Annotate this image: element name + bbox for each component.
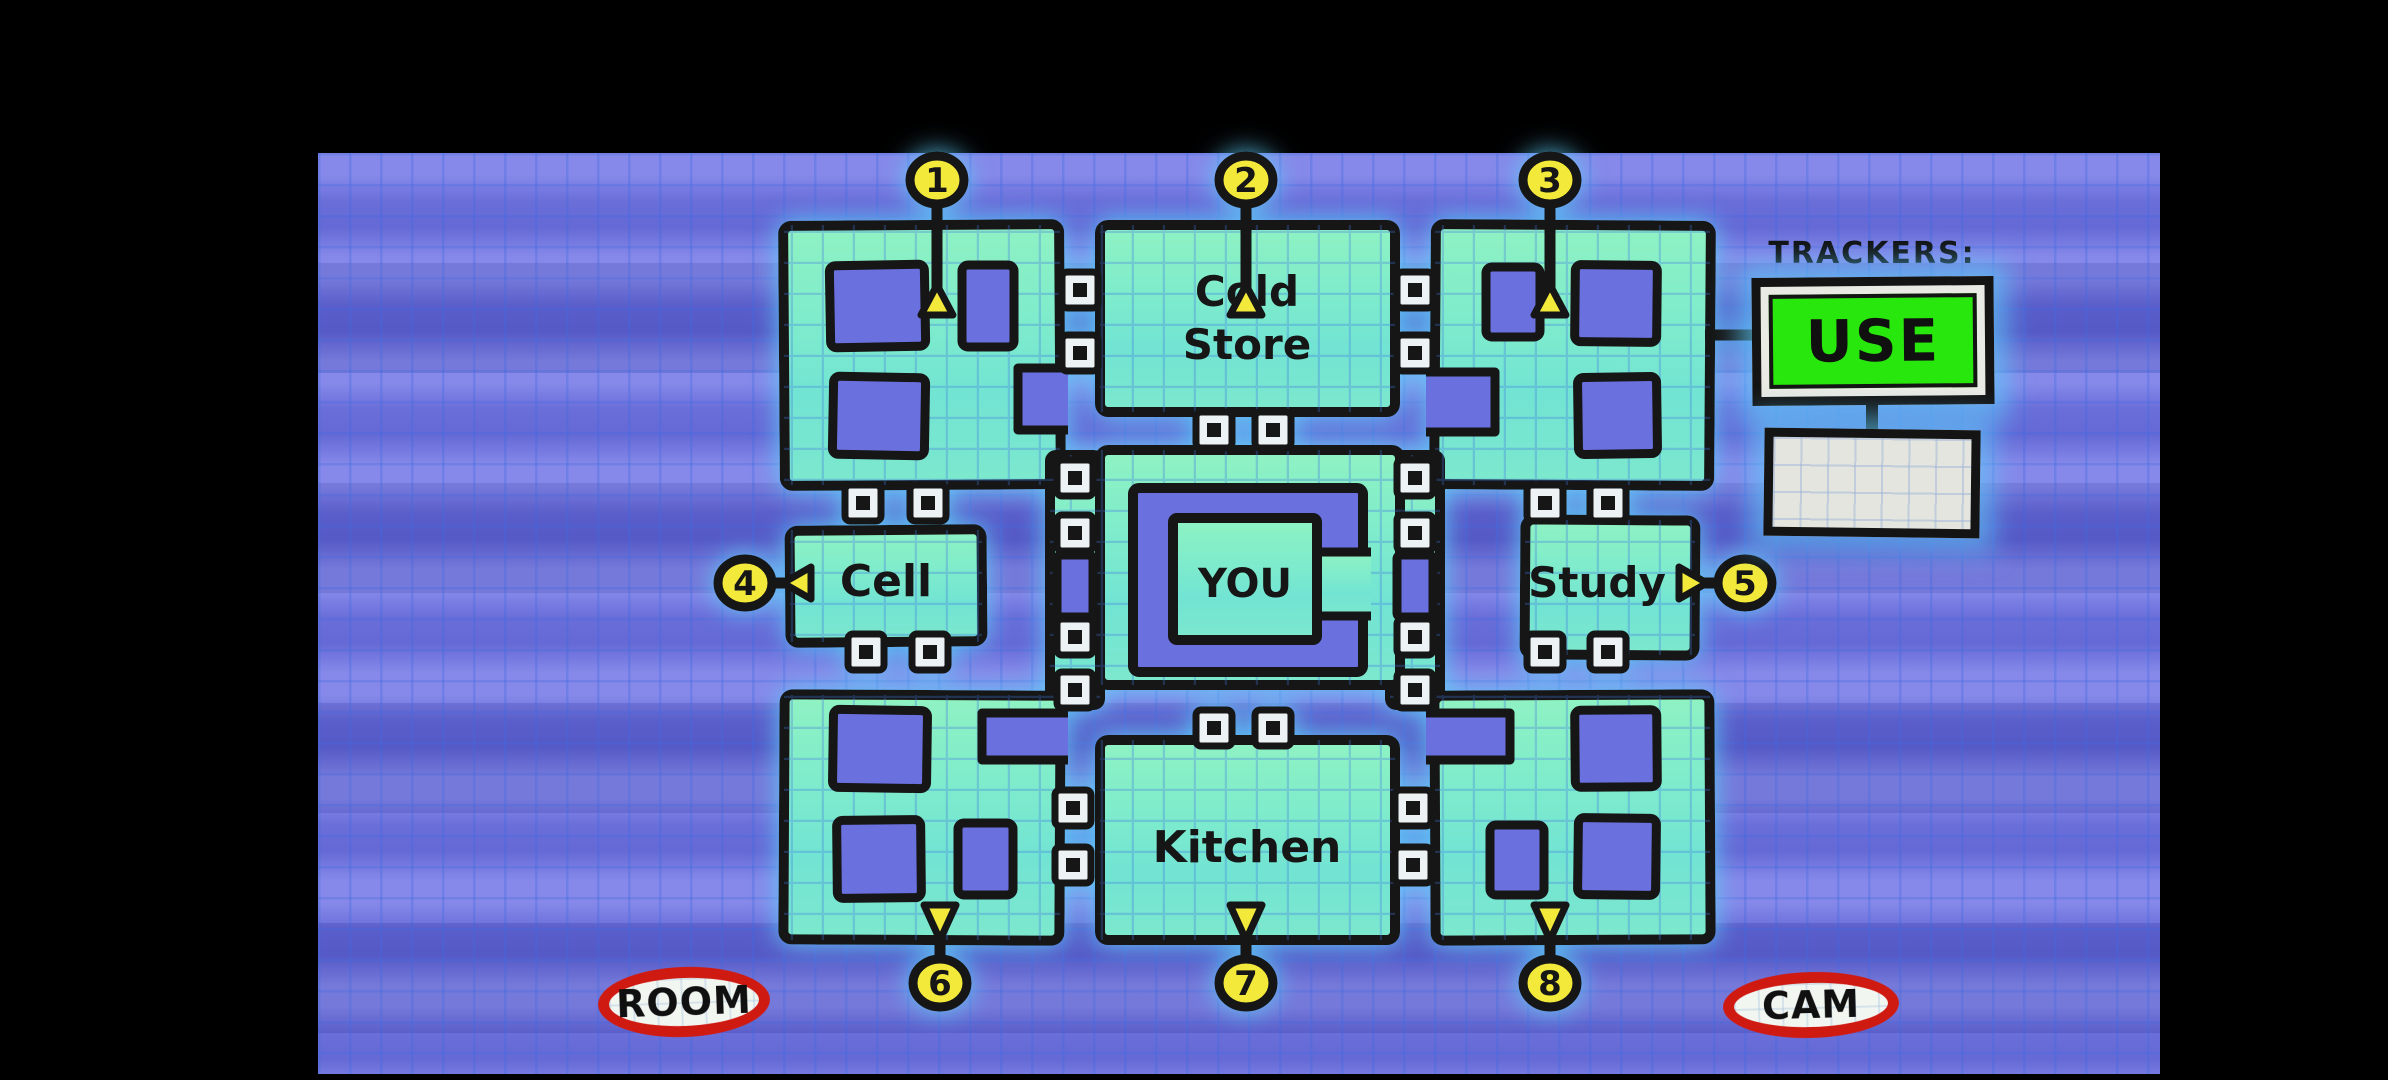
- label-you: YOU: [1197, 561, 1292, 607]
- svg-text:8: 8: [1538, 964, 1562, 1004]
- door: [912, 634, 948, 670]
- door: [1255, 710, 1291, 746]
- door: [1255, 412, 1291, 448]
- door: [1057, 672, 1093, 708]
- svg-text:6: 6: [928, 964, 952, 1004]
- tracker-connector: [1866, 402, 1878, 432]
- label-study: Study: [1528, 558, 1666, 607]
- room-button-label: ROOM: [615, 978, 752, 1027]
- door: [1395, 847, 1431, 883]
- door: [1397, 272, 1433, 308]
- door: [845, 485, 881, 521]
- map-screen: Cold Store Cell YOU Study Kitchen 1 2: [0, 0, 2388, 1080]
- label-cell: Cell: [840, 556, 932, 607]
- label-kitchen: Kitchen: [1153, 822, 1342, 873]
- door: [1055, 790, 1091, 826]
- door: [1527, 485, 1563, 521]
- door: [1196, 412, 1232, 448]
- svg-text:1: 1: [925, 161, 949, 201]
- door: [1527, 634, 1563, 670]
- door: [1395, 790, 1431, 826]
- door: [1062, 335, 1098, 371]
- door: [1397, 335, 1433, 371]
- maze-map: Cold Store Cell YOU Study Kitchen 1 2: [700, 140, 1790, 1060]
- svg-text:7: 7: [1234, 964, 1258, 1004]
- door: [1196, 710, 1232, 746]
- trackers-title: TRACKERS:: [1762, 236, 1982, 271]
- door: [1057, 515, 1093, 551]
- svg-text:3: 3: [1538, 161, 1562, 201]
- tracker-slot: [1763, 428, 1980, 539]
- door: [848, 634, 884, 670]
- bottom-letterbox: [0, 1074, 2388, 1080]
- door: [1057, 619, 1093, 655]
- use-tracker-screen: USE: [1769, 293, 1978, 389]
- svg-text:4: 4: [733, 564, 757, 604]
- door: [1590, 634, 1626, 670]
- door: [1055, 847, 1091, 883]
- use-tracker-label: USE: [1805, 306, 1940, 375]
- door: [1590, 485, 1626, 521]
- label-cold-store-2: Store: [1183, 320, 1311, 369]
- door: [1397, 460, 1433, 496]
- use-tracker-button[interactable]: USE: [1751, 276, 1994, 406]
- door: [1397, 619, 1433, 655]
- svg-text:2: 2: [1234, 161, 1258, 201]
- door: [1057, 460, 1093, 496]
- door: [1397, 672, 1433, 708]
- door: [1062, 272, 1098, 308]
- door: [910, 485, 946, 521]
- door: [1397, 515, 1433, 551]
- svg-text:5: 5: [1733, 564, 1757, 604]
- cam-button-label: CAM: [1761, 982, 1860, 1029]
